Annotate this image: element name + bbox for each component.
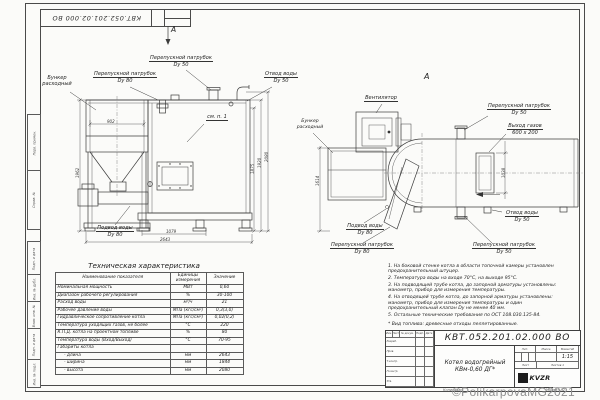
spec-row: - высотамм2080 (56, 367, 244, 375)
spec-cell: Рабочее давление воды (56, 307, 171, 315)
spec-cell: 2643 (206, 352, 243, 360)
callout-line: Dy 50 (173, 62, 188, 68)
spec-cell (170, 345, 206, 353)
callout-line: Dy 50 (514, 217, 529, 223)
note-line: 1. На боковой стенке котла в области топ… (388, 264, 568, 275)
spec-cell: МПа (кгс/см²) (170, 315, 206, 323)
callout-line: Отвод воды (264, 71, 298, 78)
spec-row: Температура воды (Вход/Выход)°С70-95 (56, 337, 244, 345)
callout-line: Перепускной патрубок (149, 55, 213, 62)
spec-cell: 220 (206, 322, 243, 330)
spec-header-cell: Единицы измерения (170, 273, 206, 285)
callout-line: Перепускной патрубок (93, 71, 157, 78)
spec-row: - ширинамм1844 (56, 360, 244, 368)
tb-staff-label: Т.контр. (386, 357, 416, 367)
spec-cell: 0,60 (206, 285, 243, 293)
dim-h3: 2080 (264, 152, 269, 162)
callout-outlet50-left: Отвод воды Dy 50 (258, 71, 304, 84)
spec-cell: 0,3(3,0) (206, 307, 243, 315)
spec-cell: Габариты котла (56, 345, 171, 353)
callout-line: Бункер (301, 119, 318, 124)
product-name-line: Котел водогрейный (445, 360, 506, 367)
spec-table: Наименование показателя Единицы измерени… (55, 272, 244, 375)
spec-cell: % (170, 330, 206, 338)
spec-cell: Номинальная мощность (56, 285, 171, 293)
spec-cell: Гидравлическое сопротивление котла (56, 315, 171, 323)
spec-header-row: Наименование показателя Единицы измерени… (56, 273, 244, 285)
title-block-revision-grid: Изм. Лист № докум. Подп. Дата Разраб. Пр… (386, 331, 434, 387)
product-name: Котел водогрейный КВм-0,60 ДГ* (434, 346, 515, 387)
callout-inlet80-left: Подвод воды Dy 80 (90, 225, 140, 238)
spec-header-cell: Наименование показателя (56, 273, 171, 285)
note-line: 3. На подводящей трубе котла, до запорно… (388, 283, 568, 294)
spec-cell: МВт (170, 285, 206, 293)
callout-outlet50-right: Отвод воды Dy 50 (498, 210, 546, 223)
callout-line: Перепускной патрубок (330, 242, 394, 249)
author-watermark: ©PolikarpovaMG2021 (452, 385, 575, 399)
product-name-line: КВм-0,60 ДГ* (455, 367, 495, 374)
note-fuel-type: * Вид топлива: древесные отходы пеллетир… (388, 322, 568, 327)
doc-number: КВТ.052.201.02.000 ВО (434, 331, 580, 346)
tb-staff-label: Н.контр. (386, 367, 416, 377)
callout-bypass50-top-right: Перепускной патрубок Dy 50 (484, 103, 554, 116)
view-label-a: А (424, 72, 429, 81)
logo-text: KVZR (530, 374, 551, 382)
dim-bunker-height: 1962 (75, 168, 80, 178)
spec-cell: - ширина (56, 360, 171, 368)
spec-cell: 30-100 (206, 292, 243, 300)
spec-cell: К.П.Д. котла на проектном топливе (56, 330, 171, 338)
callout-line: Выход газов (507, 123, 542, 130)
spec-cell: 21 (206, 300, 243, 308)
callout-line: 600 x 200 (512, 130, 538, 136)
spec-row: Температура уходящих газов, не более°С22… (56, 322, 244, 330)
tb-staff-label: Разраб. (386, 338, 416, 348)
spec-cell: Расход воды (56, 300, 171, 308)
callout-line: Отвод воды (505, 210, 539, 217)
spec-row: Габариты котла (56, 345, 244, 353)
callout-line: Перепускной патрубок (472, 242, 536, 249)
callout-line: Dy 80 (117, 78, 132, 84)
spec-cell: м³/ч (170, 300, 206, 308)
scale-value: 1:15 (557, 353, 579, 363)
spec-cell: мм (170, 367, 206, 375)
note-line: 2. Температура воды на входе 70°С, на вы… (388, 276, 568, 281)
dim-total-length: 2643 (160, 237, 170, 242)
callout-line: Dy 80 (107, 232, 122, 238)
dim-bunker-width: 902 (107, 119, 115, 124)
dim-gas-height: 1038 (501, 168, 506, 178)
spec-cell: Диапазон рабочего регулирования (56, 292, 171, 300)
spec-header-cell: Значение (206, 273, 243, 285)
callout-line: Перепускной патрубок (487, 103, 551, 110)
spec-cell: °С (170, 337, 206, 345)
spec-row: - длинамм2643 (56, 352, 244, 360)
dim-h2: 1920 (257, 158, 262, 168)
callout-bypass80-left: Перепускной патрубок Dy 80 (92, 71, 158, 84)
callout-gas-exit: Выход газов 600 x 200 (502, 123, 548, 136)
callout-bypass50-bottom-right: Перепускной патрубок Dy 50 (468, 242, 540, 255)
spec-cell: 1844 (206, 360, 243, 368)
spec-cell: 80 (206, 330, 243, 338)
drawing-sheet: КВТ.052.201.02.000 ВО Перв. примен. Спра… (0, 0, 600, 400)
spec-cell (206, 345, 243, 353)
spec-cell: % (170, 292, 206, 300)
spec-row: Гидравлическое сопротивление котлаМПа (к… (56, 315, 244, 323)
callout-bypass80-right: Перепускной патрубок Dy 80 (326, 242, 398, 255)
spec-cell: 2080 (206, 367, 243, 375)
callout-line: Dy 50 (273, 78, 288, 84)
callout-bunker-left: Бункер расходный (36, 75, 78, 87)
dim-bunker-height-right: 1614 (315, 176, 320, 186)
spec-cell: - длина (56, 352, 171, 360)
callout-fan: Вентилятор (356, 95, 406, 102)
callout-line: Dy 50 (496, 249, 511, 255)
section-marker-a: А (171, 25, 176, 34)
callout-line: Dy 50 (511, 110, 526, 116)
callout-line: см. п. 1 (206, 114, 228, 121)
callout-inlet80-right: Подвод воды Dy 80 (340, 223, 390, 236)
spec-row: Рабочее давление водыМПа (кгс/см²)0,3(3,… (56, 307, 244, 315)
spec-cell: 70-95 (206, 337, 243, 345)
sheet-label: Лист (515, 362, 537, 369)
spec-cell: 0,02(0,2) (206, 315, 243, 323)
dim-h1: 1875 (250, 164, 255, 174)
spec-cell: °С (170, 322, 206, 330)
note-line: 4. На отводящей трубе котла, до запорной… (388, 295, 568, 311)
callout-bypass50-left: Перепускной патрубок Dy 50 (148, 55, 214, 68)
spec-cell: мм (170, 352, 206, 360)
spec-cell: - высота (56, 367, 171, 375)
spec-cell: мм (170, 360, 206, 368)
spec-cell: Температура уходящих газов, не более (56, 322, 171, 330)
notes-block: 1. На боковой стенке котла в области топ… (388, 264, 568, 329)
spec-row: К.П.Д. котла на проектном топливе%80 (56, 330, 244, 338)
logo-mark (518, 373, 528, 383)
callout-bunker-right: Бункер расходный (293, 119, 327, 131)
spec-row: Диапазон рабочего регулирования%30-100 (56, 292, 244, 300)
callout-line: расходный (297, 125, 324, 130)
callout-line: Подвод воды (96, 225, 133, 232)
spec-row: Расход водым³/ч21 (56, 300, 244, 308)
tb-staff-label: Пров. (386, 347, 416, 357)
spec-cell: МПа (кгс/см²) (170, 307, 206, 315)
tb-staff-label: Утв. (386, 377, 416, 387)
manufacturer-logo: KVZR (515, 369, 580, 386)
title-block: Изм. Лист № докум. Подп. Дата Разраб. Пр… (385, 330, 581, 388)
callout-line: расходный (42, 81, 71, 87)
dim-base-length: 1079 (166, 229, 176, 234)
callout-line: Dy 80 (357, 230, 372, 236)
title-block-right-grid: Лит. Масса Масштаб 1:15 Лист Листов 1 KV… (514, 346, 580, 387)
callout-line: Dy 80 (354, 249, 369, 255)
callout-line: Вентилятор (364, 95, 398, 102)
spec-row: Номинальная мощностьМВт0,60 (56, 285, 244, 293)
spec-cell: Температура воды (Вход/Выход) (56, 337, 171, 345)
note-line: 5. Остальные технические требования по О… (388, 313, 568, 318)
callout-line: Подвод воды (346, 223, 383, 230)
callout-see-note: см. п. 1 (198, 114, 236, 121)
spec-table-title: Техническая характеристика (58, 261, 230, 270)
